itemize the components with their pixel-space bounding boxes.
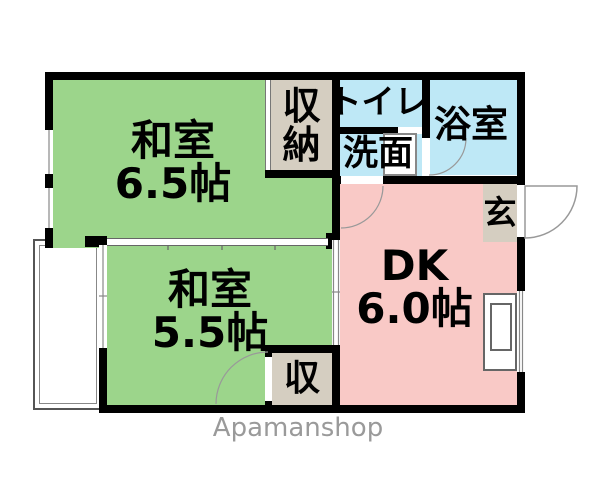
floorplan-canvas: 和室 6.5帖 和室 5.5帖 DK 6.0帖 収 納 トイレ 洗面 浴室 玄 … bbox=[0, 0, 600, 480]
fusuma-between-washitsu bbox=[107, 238, 328, 246]
window-left-upper bbox=[45, 130, 53, 174]
dk-name: DK bbox=[381, 245, 448, 288]
watermark-apamanshop: Apamanshop bbox=[178, 413, 418, 443]
label-bathroom: 浴室 bbox=[424, 103, 518, 147]
bathroom-name: 浴室 bbox=[434, 106, 508, 144]
entrance-door-arc bbox=[525, 186, 577, 238]
wall-left-seg2 bbox=[45, 174, 53, 188]
washitsu-6_5-name: 和室 bbox=[131, 120, 215, 163]
closet-top-char1: 収 bbox=[282, 87, 320, 126]
label-closet-top: 収 納 bbox=[271, 84, 332, 168]
balcony-inner-outline bbox=[39, 245, 97, 404]
wall-left-seg3 bbox=[45, 228, 53, 248]
toilet-name: トイレ bbox=[329, 85, 428, 119]
entrance-door-gap bbox=[517, 185, 525, 237]
label-toilet: トイレ bbox=[330, 82, 426, 122]
label-entrance: 玄 bbox=[483, 194, 517, 232]
closet-bottom-door-cap-bottom bbox=[265, 401, 272, 405]
wall-left-seg1 bbox=[45, 80, 53, 130]
wall-top bbox=[45, 72, 525, 80]
washroom-name: 洗面 bbox=[343, 137, 413, 173]
washitsu-5_5-size: 5.5帖 bbox=[152, 312, 268, 355]
dk-size: 6.0帖 bbox=[356, 288, 472, 331]
dk-washroom-door-gap bbox=[341, 176, 383, 184]
entrance-name: 玄 bbox=[484, 196, 517, 230]
washitsu-5_5-name: 和室 bbox=[168, 269, 252, 312]
label-closet-bottom: 収 bbox=[272, 360, 332, 398]
closet-bottom-name: 収 bbox=[284, 361, 320, 398]
window-left-lower bbox=[45, 188, 53, 228]
closet-top-char2: 納 bbox=[282, 126, 320, 165]
washitsu-6_5-size: 6.5帖 bbox=[115, 163, 231, 206]
label-washitsu-5_5: 和室 5.5帖 bbox=[100, 267, 320, 357]
label-dk: DK 6.0帖 bbox=[332, 243, 497, 333]
wall-bottom bbox=[99, 405, 525, 413]
window-dk-right bbox=[517, 291, 525, 372]
label-washitsu-6_5: 和室 6.5帖 bbox=[63, 118, 283, 208]
closet-bottom-door bbox=[265, 353, 272, 405]
label-washroom: 洗面 bbox=[332, 135, 424, 175]
